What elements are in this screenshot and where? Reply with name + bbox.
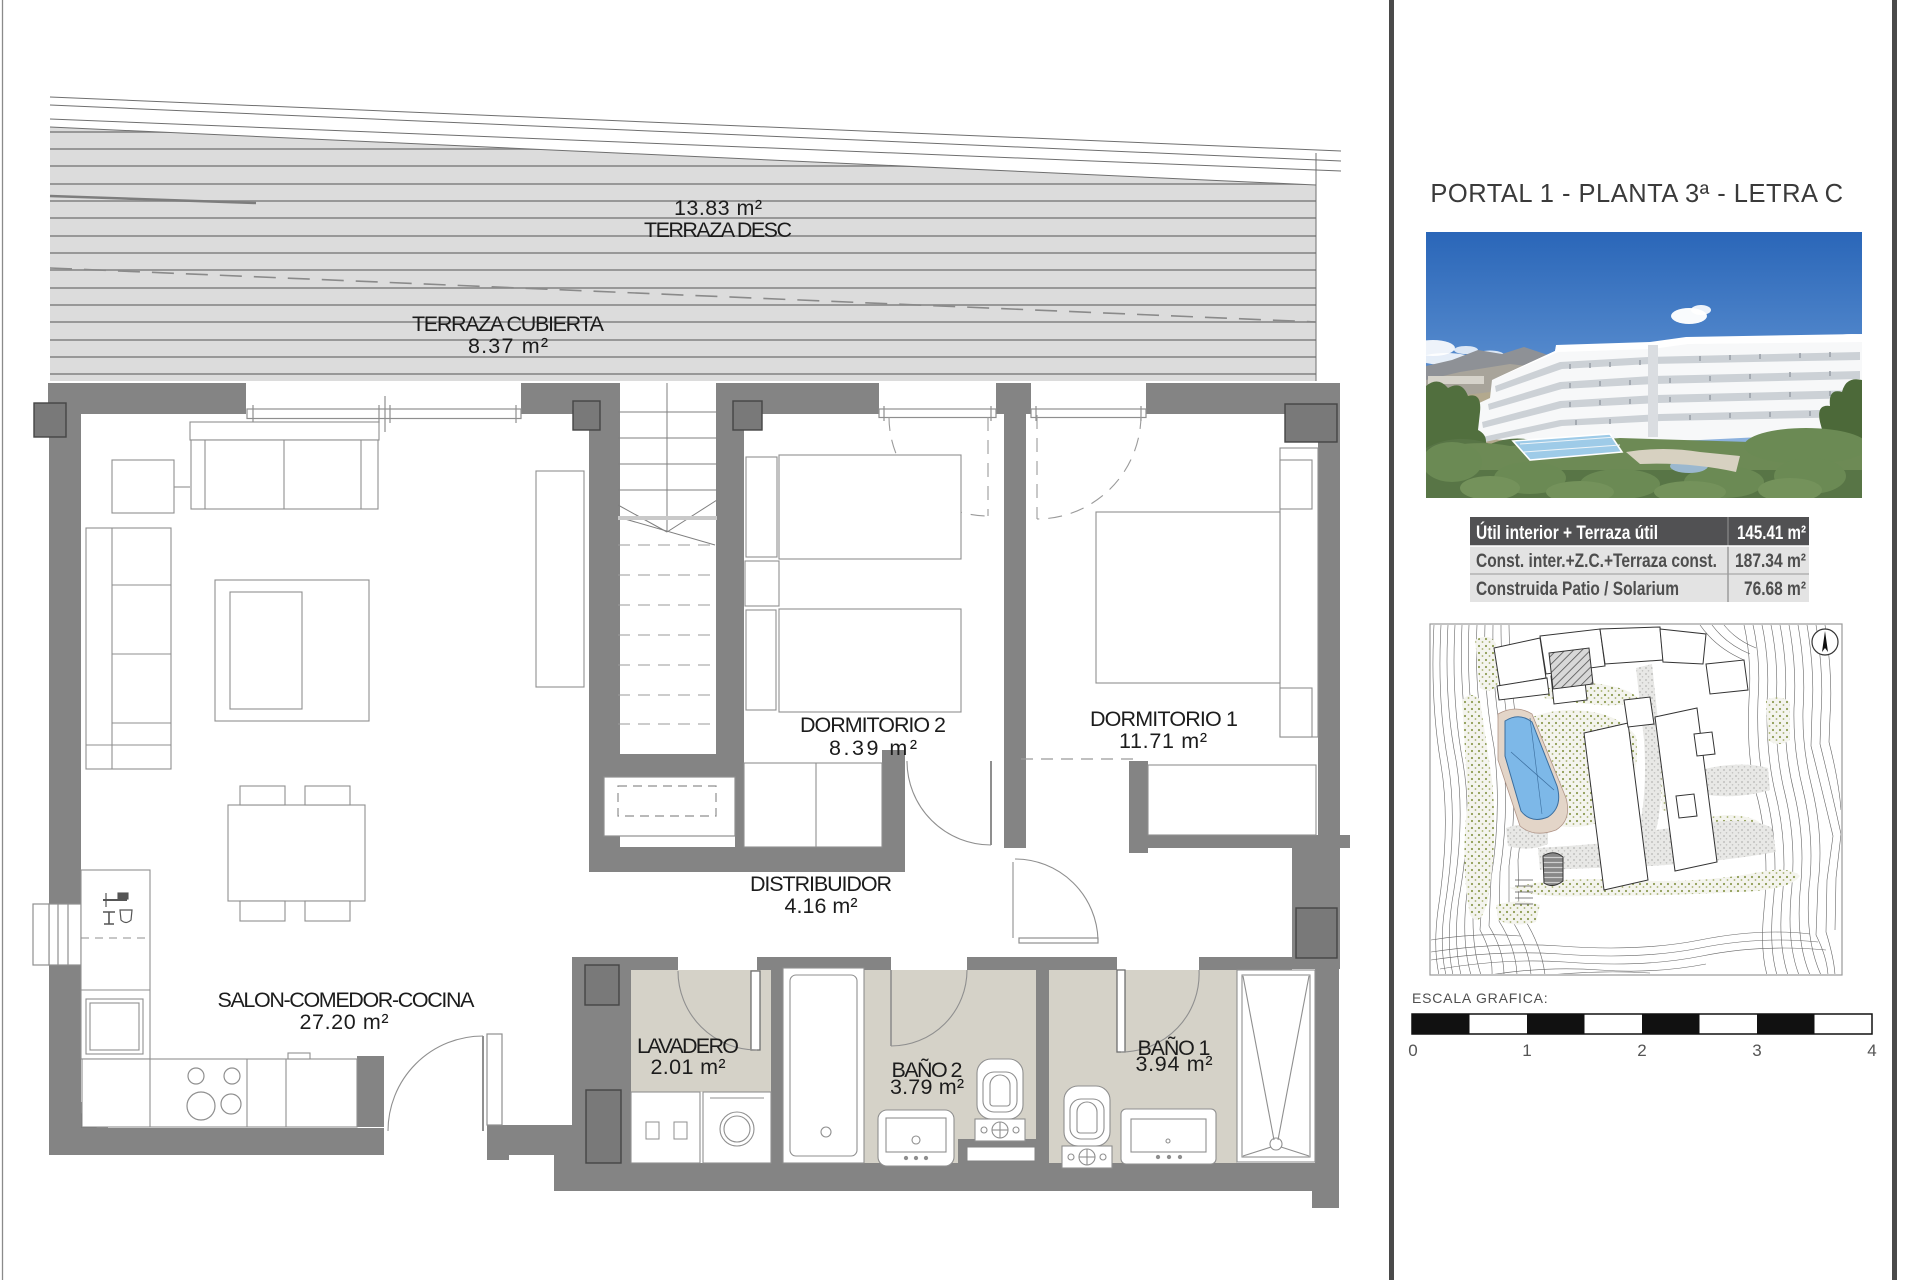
svg-text:Construida Patio / Solarium: Construida Patio / Solarium: [1476, 578, 1679, 600]
svg-text:0: 0: [1408, 1041, 1417, 1060]
svg-text:TERRAZA CUBIERTA: TERRAZA CUBIERTA: [412, 312, 605, 336]
svg-text:DORMITORIO 1: DORMITORIO 1: [1090, 707, 1238, 731]
svg-text:3.79 m²: 3.79 m²: [890, 1075, 964, 1099]
svg-text:DISTRIBUIDOR: DISTRIBUIDOR: [750, 872, 892, 896]
svg-text:4: 4: [1867, 1041, 1876, 1060]
svg-text:187.34 m²: 187.34 m²: [1735, 550, 1806, 572]
svg-text:145.41 m²: 145.41 m²: [1737, 522, 1806, 544]
svg-text:1: 1: [1522, 1041, 1531, 1060]
svg-text:2.01 m²: 2.01 m²: [651, 1055, 726, 1079]
svg-text:11.71 m²: 11.71 m²: [1119, 729, 1207, 753]
svg-text:3: 3: [1752, 1041, 1761, 1060]
svg-text:SALON-COMEDOR-COCINA: SALON-COMEDOR-COCINA: [218, 988, 476, 1012]
svg-text:13.83 m²: 13.83 m²: [674, 196, 762, 220]
svg-text:DORMITORIO 2: DORMITORIO 2: [800, 713, 946, 737]
svg-text:2: 2: [1637, 1041, 1646, 1060]
svg-text:3.94 m²: 3.94 m²: [1136, 1052, 1213, 1076]
svg-text:27.20 m²: 27.20 m²: [300, 1010, 389, 1034]
svg-text:ESCALA GRAFICA:: ESCALA GRAFICA:: [1412, 990, 1548, 1006]
svg-text:Útil interior + Terraza útil: Útil interior + Terraza útil: [1476, 520, 1658, 544]
svg-text:PORTAL 1 - PLANTA 3ª - LETRA C: PORTAL 1 - PLANTA 3ª - LETRA C: [1430, 180, 1843, 208]
svg-text:Const. inter.+Z.C.+Terraza con: Const. inter.+Z.C.+Terraza const.: [1476, 550, 1717, 572]
svg-text:TERRAZA DESC: TERRAZA DESC: [644, 218, 792, 242]
svg-text:4.16 m²: 4.16 m²: [785, 894, 858, 918]
svg-text:76.68 m²: 76.68 m²: [1744, 578, 1806, 600]
